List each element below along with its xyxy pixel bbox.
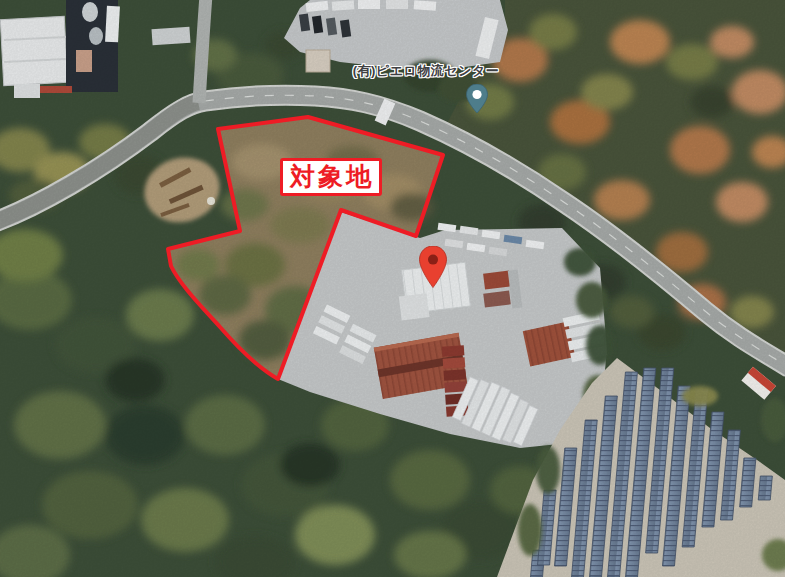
place-label-logistics-center[interactable]: (有)ピエロ物流センター <box>346 62 506 80</box>
red-map-pin-icon[interactable] <box>419 246 447 288</box>
satellite-map-view[interactable]: (有)ピエロ物流センター 対象地 <box>0 0 785 577</box>
teal-place-pin-icon[interactable] <box>466 84 488 114</box>
texture-grain <box>0 0 785 577</box>
map-canvas <box>0 0 785 577</box>
target-area-label: 対象地 <box>280 158 382 196</box>
